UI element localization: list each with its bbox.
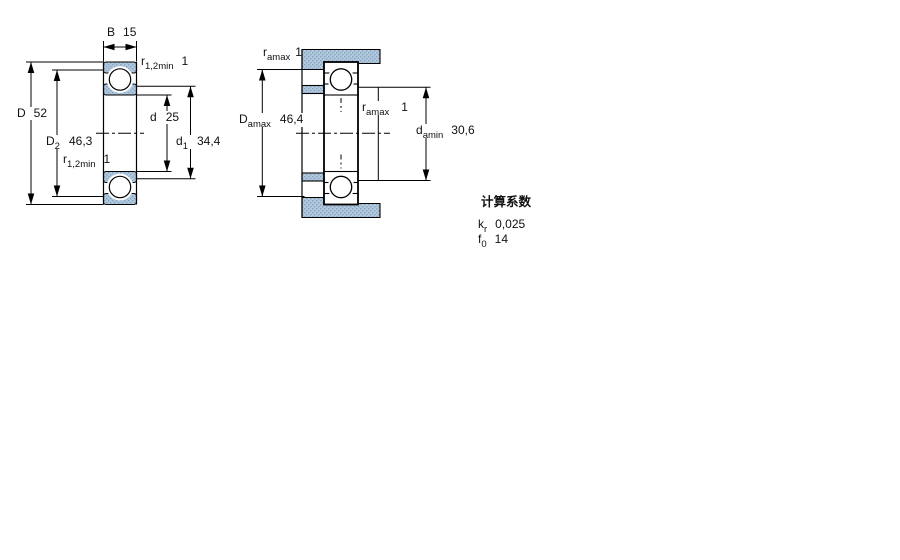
symbol-subscript: amin [423,130,444,141]
dim-label-D2: D246,3 [44,135,94,149]
dim-label-Da: Damax46,4 [237,113,305,127]
symbol-base: d [176,134,183,148]
left-bearing-drawing [96,62,144,205]
dimension-value: 30,6 [451,124,474,137]
dim-label-d: d25 [148,111,181,124]
calc-factor-f0: f014 [478,233,508,247]
ball-bottom [330,176,351,197]
shaft-shoulder-bottom [302,173,324,181]
symbol-base: D [17,106,26,120]
dim-label-r12-bottom: r1,2min1 [63,153,110,167]
dimension-value: 46,4 [280,113,303,126]
symbol-subscript: 1,2min [67,159,96,170]
dimension-value: 34,4 [197,135,220,148]
dim-label-B: B15 [107,26,136,39]
factor-value: 0,025 [495,218,525,231]
dimension-value: 15 [123,26,136,39]
dimension-value: 1 [182,55,189,68]
dimension-value: 46,3 [69,135,92,148]
dimension-value: 1 [104,153,111,166]
dim-label-d1: d134,4 [174,135,222,149]
symbol-base: B [107,25,115,39]
symbol-base: d [416,123,423,137]
bearing-datasheet-figure: B15 r1,2min1 D52 D246,3 r1,2min1 d25 d13… [0,0,900,560]
factor-value: 14 [495,233,508,246]
right-mounting-drawing [296,50,390,218]
symbol-base: D [46,134,55,148]
ball-top [330,69,351,90]
dim-label-D: D52 [15,107,49,120]
symbol-subscript: 0 [481,239,486,250]
dim-label-r12-top: r1,2min1 [141,55,188,69]
symbol-subscript: amax [267,52,290,63]
symbol-subscript: amax [366,107,389,118]
calc-factor-kr: kr0,025 [478,218,525,232]
shaft-shoulder-top [302,86,324,94]
symbol-subscript: amax [248,119,271,130]
dim-label-ra-top: ramax1 [263,46,302,60]
symbol-subscript: 1 [183,141,188,152]
dimension-value: 52 [34,107,47,120]
ball-top [109,69,130,90]
symbol-subscript: 2 [55,141,60,152]
dim-label-ra-mid: ramax1 [360,101,410,115]
dim-label-da: damin30,6 [414,124,477,138]
calc-factors-title: 计算系数 [481,196,531,209]
symbol-base: d [150,110,157,124]
symbol-subscript: 1,2min [145,61,174,72]
dimension-value: 1 [401,101,408,114]
symbol-base: D [239,112,248,126]
ball-bottom [109,176,130,197]
dimension-value: 25 [166,111,179,124]
dimension-value: 1 [295,46,302,59]
technical-drawing-svg [0,0,900,560]
